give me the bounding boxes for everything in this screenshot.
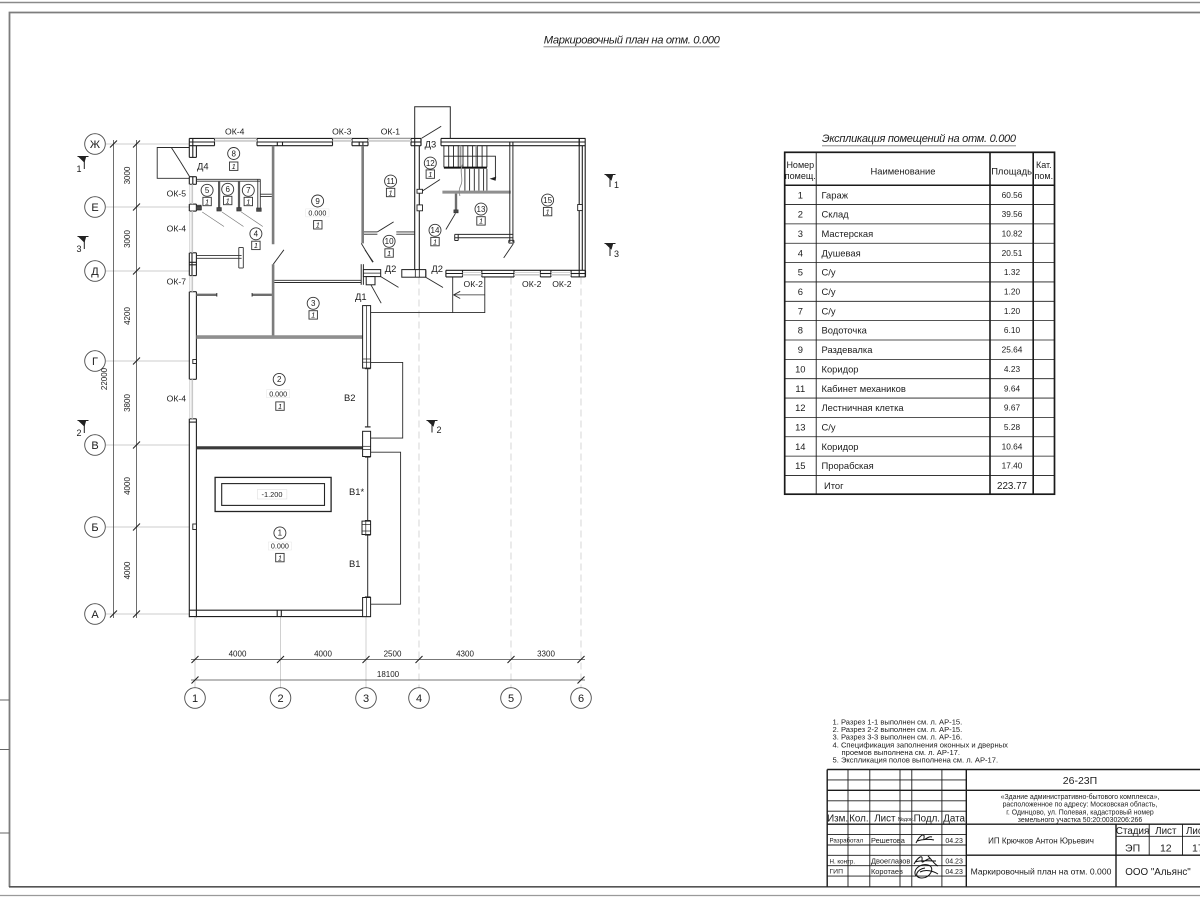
- svg-text:2: 2: [277, 375, 282, 384]
- svg-text:2: 2: [77, 428, 82, 438]
- svg-text:В: В: [91, 440, 98, 452]
- svg-text:1: 1: [192, 693, 198, 705]
- svg-text:ОК-2: ОК-2: [464, 279, 484, 289]
- svg-text:1: 1: [311, 311, 315, 320]
- svg-text:1.20: 1.20: [1004, 287, 1021, 297]
- svg-text:11: 11: [795, 383, 805, 394]
- svg-text:12: 12: [426, 159, 435, 168]
- svg-text:223.77: 223.77: [997, 481, 1027, 492]
- svg-text:18100: 18100: [377, 670, 400, 679]
- svg-text:В2: В2: [344, 392, 355, 403]
- svg-text:1: 1: [387, 249, 391, 258]
- svg-text:1: 1: [278, 402, 282, 411]
- svg-text:13: 13: [477, 205, 486, 214]
- svg-text:14: 14: [431, 226, 440, 235]
- svg-text:Коридор: Коридор: [822, 441, 859, 452]
- svg-text:1: 1: [226, 196, 230, 205]
- svg-text:26-23П: 26-23П: [1063, 775, 1097, 787]
- svg-text:1: 1: [798, 189, 803, 200]
- svg-text:39.56: 39.56: [1002, 209, 1023, 219]
- svg-text:0.000: 0.000: [271, 542, 289, 551]
- svg-text:8: 8: [231, 149, 236, 158]
- svg-text:ОК-7: ОК-7: [167, 277, 187, 287]
- svg-text:Ж: Ж: [90, 139, 100, 151]
- svg-text:0.000: 0.000: [269, 389, 287, 398]
- svg-text:Д2: Д2: [385, 263, 397, 274]
- svg-text:22000: 22000: [100, 367, 109, 390]
- svg-text:Листов: Листов: [1186, 826, 1200, 837]
- svg-text:Решетова: Решетова: [871, 836, 906, 845]
- svg-text:Площадь: Площадь: [991, 166, 1032, 177]
- svg-text:4: 4: [416, 693, 422, 705]
- svg-text:Экспликация помещений на отм.: Экспликация помещений на отм. 0.000: [822, 133, 1017, 145]
- svg-text:5: 5: [798, 267, 803, 278]
- svg-text:4000: 4000: [123, 561, 132, 579]
- svg-text:В1: В1: [349, 558, 360, 569]
- svg-text:9: 9: [315, 197, 320, 206]
- svg-text:12: 12: [795, 402, 805, 413]
- svg-text:5. Экспликация полов выполнена: 5. Экспликация полов выполнена см. л. АР…: [833, 756, 999, 765]
- svg-text:Гараж: Гараж: [822, 189, 849, 200]
- svg-text:3: 3: [798, 228, 803, 239]
- svg-text:1: 1: [278, 529, 283, 538]
- svg-text:1: 1: [546, 207, 550, 216]
- svg-text:25.64: 25.64: [1002, 345, 1023, 355]
- svg-text:1: 1: [205, 197, 209, 206]
- svg-text:ГИП: ГИП: [830, 869, 844, 876]
- svg-text:помещ.: помещ.: [785, 171, 816, 181]
- svg-text:12: 12: [1160, 842, 1172, 854]
- svg-text:1: 1: [389, 188, 393, 197]
- svg-text:9.67: 9.67: [1004, 403, 1021, 413]
- svg-text:4: 4: [798, 247, 803, 258]
- svg-text:Маркировочный план на отм. 0.0: Маркировочный план на отм. 0.000: [544, 34, 721, 46]
- svg-text:10: 10: [385, 237, 394, 246]
- svg-text:1: 1: [479, 217, 483, 226]
- svg-text:Изм.: Изм.: [827, 814, 848, 825]
- svg-text:6: 6: [798, 286, 803, 297]
- svg-text:С/у: С/у: [822, 422, 836, 433]
- svg-text:17: 17: [1192, 842, 1200, 854]
- svg-text:Коридор: Коридор: [822, 363, 859, 374]
- svg-text:9: 9: [798, 344, 803, 355]
- svg-text:10.82: 10.82: [1002, 229, 1023, 239]
- svg-text:04.23: 04.23: [945, 869, 963, 876]
- svg-text:1: 1: [254, 241, 258, 250]
- svg-text:7: 7: [798, 305, 803, 316]
- svg-text:Итог: Итог: [824, 480, 844, 491]
- svg-text:№док.: №док.: [898, 817, 915, 823]
- svg-text:14: 14: [795, 441, 805, 452]
- svg-text:20.51: 20.51: [1002, 248, 1023, 258]
- svg-text:ОК-4: ОК-4: [225, 126, 245, 136]
- svg-text:Склад: Склад: [822, 209, 850, 220]
- svg-text:А: А: [91, 609, 99, 621]
- svg-text:11: 11: [386, 177, 395, 186]
- svg-text:1: 1: [433, 237, 437, 246]
- svg-text:Двоеглазов: Двоеглазов: [871, 857, 910, 866]
- svg-text:04.23: 04.23: [945, 838, 963, 845]
- svg-text:ЭП: ЭП: [1125, 842, 1140, 854]
- svg-text:С/у: С/у: [822, 305, 836, 316]
- svg-text:3800: 3800: [123, 394, 132, 412]
- svg-text:3: 3: [311, 299, 316, 308]
- svg-text:Д2: Д2: [431, 263, 443, 274]
- svg-text:2: 2: [277, 693, 283, 705]
- svg-text:1: 1: [316, 221, 320, 230]
- svg-text:2: 2: [437, 425, 442, 435]
- svg-text:4300: 4300: [456, 650, 474, 659]
- svg-text:Г: Г: [92, 356, 98, 368]
- svg-text:Стадия: Стадия: [1116, 826, 1149, 837]
- svg-text:Мастерская: Мастерская: [822, 228, 874, 239]
- svg-text:Разработал: Разработал: [830, 838, 864, 845]
- svg-text:Кат.: Кат.: [1036, 160, 1052, 170]
- svg-text:1: 1: [278, 553, 282, 562]
- svg-text:3300: 3300: [537, 650, 555, 659]
- svg-text:15: 15: [795, 460, 805, 471]
- svg-text:ИП Крючков Антон Юрьевич: ИП Крючков Антон Юрьевич: [988, 836, 1094, 845]
- svg-text:13: 13: [795, 422, 805, 433]
- svg-text:ОК-2: ОК-2: [552, 279, 572, 289]
- svg-text:С/у: С/у: [822, 286, 836, 297]
- svg-text:ОК-2: ОК-2: [522, 279, 542, 289]
- svg-text:4200: 4200: [123, 307, 132, 325]
- svg-text:Н. контр.: Н. контр.: [830, 858, 856, 865]
- svg-text:1: 1: [77, 164, 82, 174]
- svg-text:Прорабская: Прорабская: [822, 460, 874, 471]
- svg-text:2500: 2500: [384, 650, 402, 659]
- svg-text:ОК-5: ОК-5: [167, 189, 187, 199]
- svg-text:Номер: Номер: [786, 160, 814, 170]
- svg-text:Раздевалка: Раздевалка: [822, 344, 874, 355]
- svg-text:Дата: Дата: [943, 814, 965, 825]
- svg-text:4.23: 4.23: [1004, 364, 1021, 374]
- svg-text:Коротаев: Коротаев: [871, 867, 903, 876]
- svg-text:Кабинет механиков: Кабинет механиков: [822, 383, 906, 394]
- svg-text:Е: Е: [91, 202, 98, 214]
- svg-text:4000: 4000: [123, 477, 132, 495]
- svg-text:ООО "Альянс": ООО "Альянс": [1125, 867, 1191, 878]
- svg-text:60.56: 60.56: [1002, 190, 1023, 200]
- svg-text:7: 7: [246, 186, 251, 195]
- svg-text:Д3: Д3: [425, 139, 437, 150]
- svg-text:1.20: 1.20: [1004, 306, 1021, 316]
- svg-text:4: 4: [254, 230, 259, 239]
- svg-text:-1.200: -1.200: [262, 490, 283, 499]
- svg-text:5: 5: [508, 693, 514, 705]
- svg-text:1: 1: [614, 180, 619, 190]
- svg-text:Лестничная клетка: Лестничная клетка: [822, 402, 905, 413]
- svg-text:Д4: Д4: [197, 161, 209, 172]
- svg-text:Водоточка: Водоточка: [822, 325, 868, 336]
- svg-text:3: 3: [363, 693, 369, 705]
- svg-text:Лист: Лист: [1155, 826, 1177, 837]
- svg-text:1: 1: [428, 170, 432, 179]
- svg-text:3000: 3000: [123, 166, 132, 184]
- svg-text:Д1: Д1: [355, 291, 367, 302]
- svg-text:2: 2: [798, 209, 803, 220]
- svg-text:3: 3: [614, 249, 619, 259]
- svg-text:Наименование: Наименование: [871, 166, 936, 177]
- svg-text:г. Одинцово, ул. Полевая, када: г. Одинцово, ул. Полевая, кадастровый но…: [1006, 808, 1154, 816]
- svg-text:ОК-3: ОК-3: [332, 126, 352, 136]
- svg-text:17.40: 17.40: [1002, 461, 1023, 471]
- svg-text:пом.: пом.: [1035, 171, 1054, 181]
- svg-text:С/у: С/у: [822, 267, 836, 278]
- svg-text:расположенное по адресу: Моско: расположенное по адресу: Московская обла…: [1003, 801, 1158, 809]
- svg-text:4000: 4000: [229, 650, 247, 659]
- svg-text:ОК-4: ОК-4: [167, 393, 187, 403]
- svg-text:5.28: 5.28: [1004, 422, 1021, 432]
- svg-text:10: 10: [795, 363, 805, 374]
- svg-text:04.23: 04.23: [945, 859, 963, 866]
- svg-text:1: 1: [232, 162, 236, 171]
- svg-text:8: 8: [798, 325, 803, 336]
- svg-text:«Здание административно-бытово: «Здание административно-бытового комплек…: [1001, 793, 1160, 801]
- svg-text:10.64: 10.64: [1002, 441, 1023, 451]
- svg-text:Д: Д: [91, 266, 99, 278]
- svg-text:6.10: 6.10: [1004, 325, 1021, 335]
- svg-text:3000: 3000: [123, 230, 132, 248]
- svg-text:Маркировочный план на отм. 0.0: Маркировочный план на отм. 0.000: [971, 867, 1112, 877]
- svg-text:Кол.: Кол.: [849, 814, 868, 825]
- svg-text:0.000: 0.000: [308, 209, 326, 218]
- svg-text:6: 6: [578, 693, 584, 705]
- svg-text:земельного участка 50:20:00302: земельного участка 50:20:0030206:266: [1018, 817, 1143, 824]
- svg-text:Б: Б: [91, 522, 98, 534]
- svg-text:3: 3: [77, 244, 82, 254]
- svg-text:9.64: 9.64: [1004, 383, 1021, 393]
- svg-text:ОК-1: ОК-1: [381, 126, 401, 136]
- svg-text:4000: 4000: [314, 650, 332, 659]
- svg-text:5: 5: [205, 186, 210, 195]
- svg-text:1: 1: [246, 197, 250, 206]
- svg-text:15: 15: [543, 196, 552, 205]
- svg-text:Подл.: Подл.: [914, 814, 940, 825]
- svg-text:Лист: Лист: [874, 814, 896, 825]
- svg-text:1.32: 1.32: [1004, 267, 1021, 277]
- svg-text:ОК-4: ОК-4: [167, 223, 187, 233]
- svg-text:6: 6: [225, 185, 230, 194]
- svg-text:Душевая: Душевая: [822, 247, 861, 258]
- svg-text:В1*: В1*: [349, 486, 364, 497]
